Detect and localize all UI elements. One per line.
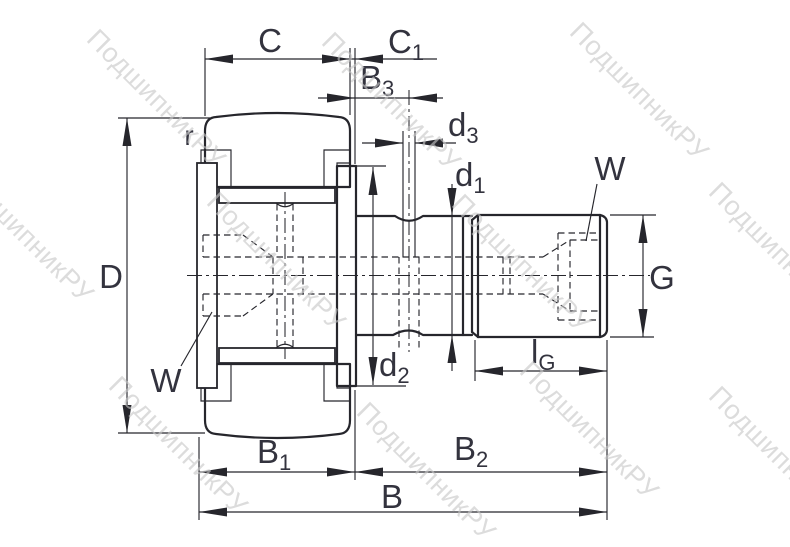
arrow-d3-left <box>375 139 403 148</box>
technical-drawing-page: C C1 B3 d3 d1 d2 G lG <box>0 0 790 547</box>
arrow-B2-left <box>355 468 383 477</box>
dim-label-G: G <box>649 259 675 296</box>
arrow-D-top <box>123 118 132 146</box>
arrow-lG-right <box>579 367 607 376</box>
seal-top-right <box>324 150 350 187</box>
watermark-text: ПодшипникРУ <box>81 23 232 174</box>
arrow-C-left <box>205 55 233 64</box>
seal-bottom-right <box>324 364 350 401</box>
dim-label-D: D <box>99 258 123 295</box>
dimension-B: B <box>199 478 607 517</box>
watermark-text: ПодшипникРУ <box>446 188 597 339</box>
arrow-B2-right <box>579 468 607 477</box>
watermark-text: ПодшипникРУ <box>703 380 790 531</box>
dim-label-C: C <box>258 22 282 59</box>
dim-label-B: B <box>381 478 403 515</box>
arrow-d2-bottom <box>369 357 378 385</box>
dim-label-C1: C1 <box>388 23 424 65</box>
dim-label-B2: B2 <box>454 430 488 472</box>
arrow-G-top <box>639 215 648 243</box>
roller-row-bottom <box>219 348 335 363</box>
dim-label-B1: B1 <box>257 433 291 475</box>
dim-label-W-bottom: W <box>150 362 182 399</box>
arrow-B3-left <box>327 94 355 103</box>
watermark-text: ПодшипникРУ <box>514 355 665 506</box>
arrow-d1-bottom <box>448 335 457 363</box>
watermark-text: ПодшипникРУ <box>564 16 715 167</box>
arrow-G-bottom <box>639 309 648 337</box>
arrow-B-right <box>579 508 607 517</box>
arrow-B1-right <box>327 468 355 477</box>
dim-label-d2: d2 <box>379 346 410 388</box>
arrow-lG-left <box>475 367 503 376</box>
watermark-text: ПодшипникРУ <box>0 158 100 309</box>
cam-follower-bearing-drawing: C C1 B3 d3 d1 d2 G lG <box>0 0 790 547</box>
watermark-text: ПодшипникРУ <box>703 176 790 327</box>
dim-label-W-top: W <box>594 150 626 187</box>
arrow-d2-top <box>369 167 378 195</box>
